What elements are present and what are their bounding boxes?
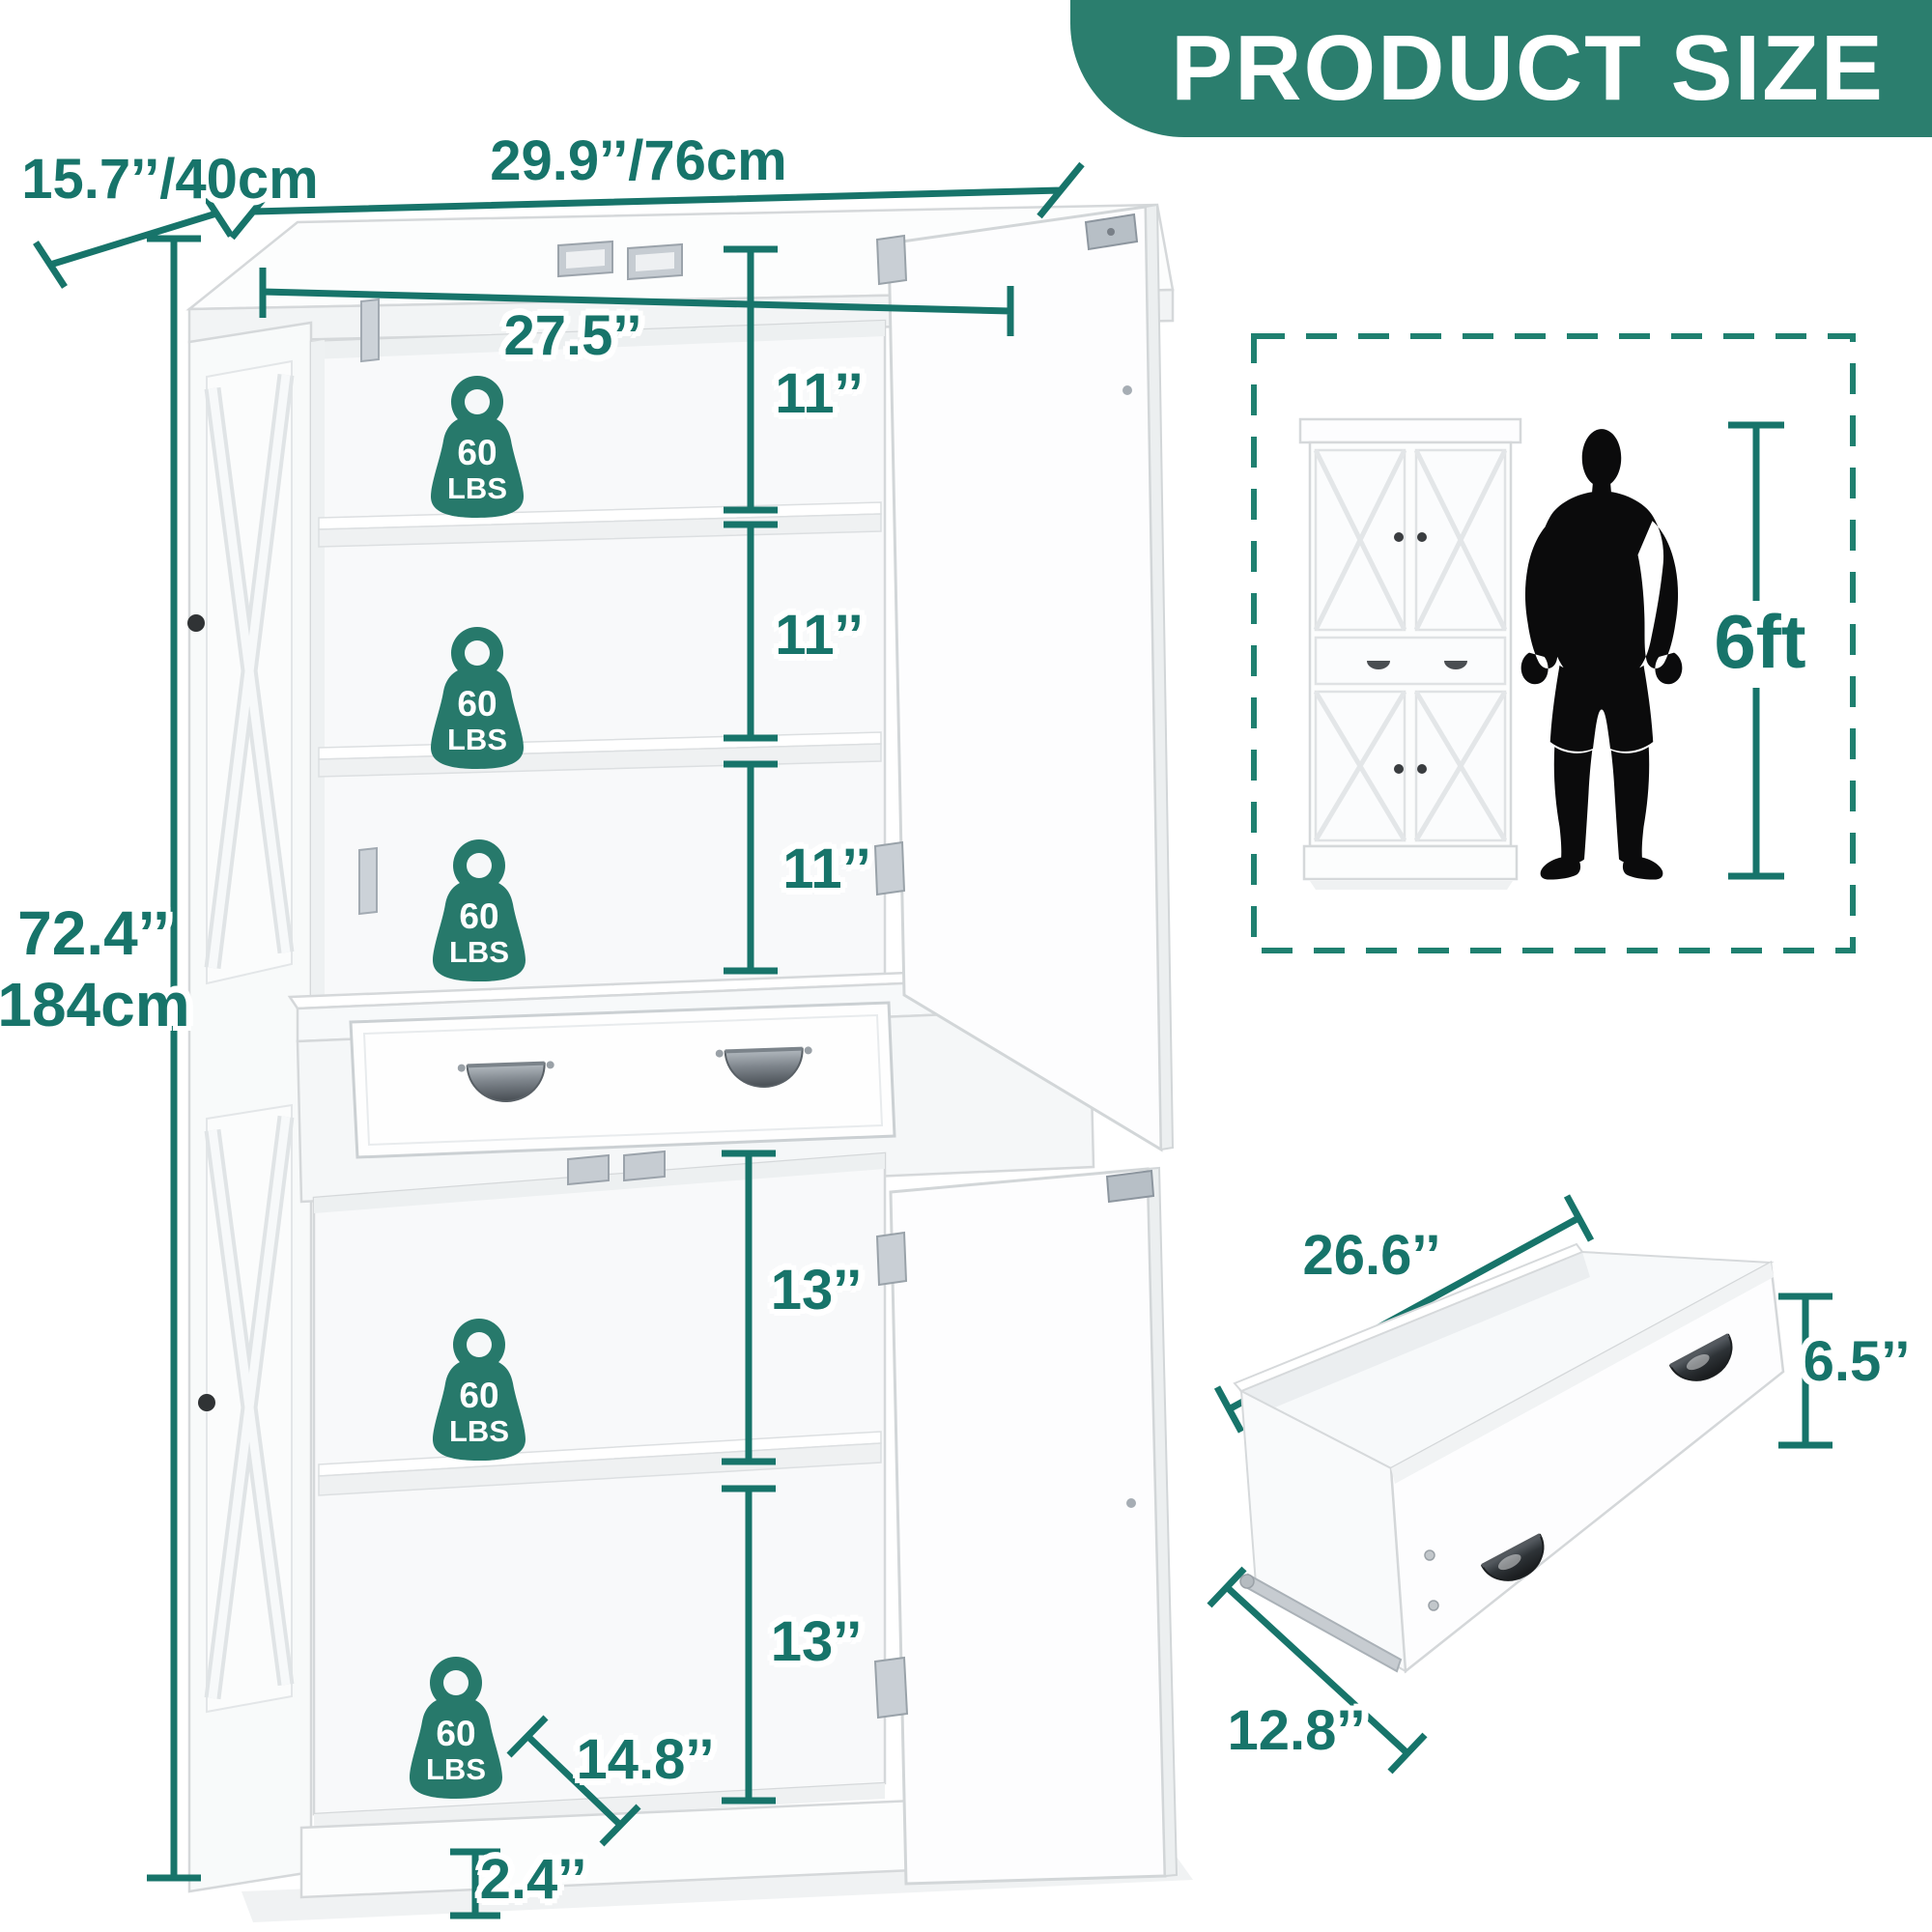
inner-width-label: 27.5’’ [504, 308, 642, 364]
left-door-knob-lower [198, 1394, 215, 1411]
man-silhouette [1521, 429, 1683, 879]
capacity-badge: 60 LBS [419, 371, 535, 522]
drawer-detail [1235, 1244, 1783, 1671]
title-banner: PRODUCT SIZE [1070, 0, 1932, 137]
bottom-shelf-depth-label: 14.8’’ [577, 1732, 715, 1788]
capacity-badge: 60 LBS [419, 622, 535, 773]
person-height-label: 6ft [1714, 604, 1805, 679]
capacity-unit: LBS [421, 1416, 537, 1446]
capacity-value: 60 [421, 1378, 537, 1413]
capacity-unit: LBS [419, 473, 535, 503]
depth-label: 15.7’’/40cm [21, 152, 318, 208]
drawer-width-label: 26.6’’ [1303, 1228, 1441, 1284]
diagram-artwork [0, 0, 1932, 1932]
small-drawer [1316, 638, 1505, 684]
upper-compartment [311, 321, 885, 1022]
capacity-unit: LBS [398, 1754, 514, 1784]
left-door-knob-upper [187, 614, 205, 632]
capacity-badge: 60 LBS [421, 1314, 537, 1464]
capacity-badge: 60 LBS [398, 1652, 514, 1803]
hinge-plate-icon [359, 848, 377, 914]
small-cabinet [1300, 419, 1520, 890]
width-label: 29.9’’/76cm [490, 133, 786, 189]
corner-bracket-icon [1107, 1171, 1153, 1202]
height-inch-label: 72.4’’ [17, 902, 170, 964]
main-cabinet [187, 205, 1193, 1922]
lower-open-door [891, 1168, 1177, 1884]
capacity-value: 60 [419, 686, 535, 722]
base-height-label: 2.4’’ [480, 1852, 587, 1908]
lower-section-label-2: 13’’ [771, 1614, 863, 1670]
door-screw-icon [1126, 1498, 1136, 1508]
door-screw-icon [1122, 385, 1132, 395]
middle-drawer-front [351, 1003, 895, 1157]
capacity-value: 60 [398, 1716, 514, 1751]
rail-wheel-icon [1240, 1575, 1254, 1588]
hinge-plate-icon [361, 299, 379, 361]
capacity-unit: LBS [421, 937, 537, 967]
drawer-height-label: 6.5’’ [1804, 1334, 1911, 1390]
upper-interior-left-shadow [311, 340, 325, 1022]
capacity-unit: LBS [419, 724, 535, 754]
capacity-value: 60 [419, 435, 535, 470]
drawer-depth-label: 12.8’’ [1228, 1703, 1366, 1759]
upper-section-label-3: 11’’ [782, 841, 870, 897]
height-cm-label: 184cm [0, 974, 190, 1036]
capacity-badge: 60 LBS [421, 835, 537, 985]
capacity-value: 60 [421, 898, 537, 934]
upper-open-door [889, 205, 1173, 1150]
upper-section-label-1: 11’’ [775, 366, 863, 422]
product-size-infographic: PRODUCT SIZE 15.7’’/40cm 29.9’’/76cm 27.… [0, 0, 1932, 1932]
lower-section-label-1: 13’’ [771, 1263, 863, 1319]
page-title: PRODUCT SIZE [1118, 15, 1885, 122]
upper-section-label-2: 11’’ [775, 608, 863, 664]
